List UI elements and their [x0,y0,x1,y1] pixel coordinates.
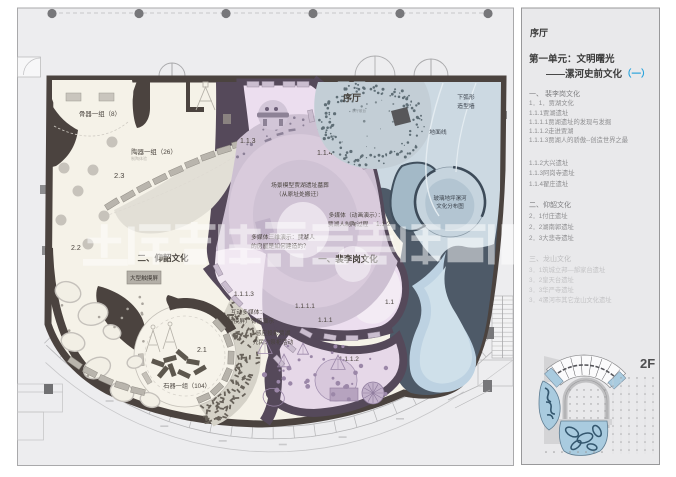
svg-text:1.1.1贾湖遗址: 1.1.1贾湖遗址 [529,108,569,117]
svg-text:2.3: 2.3 [114,171,124,180]
svg-text:1.1.1.3: 1.1.1.3 [234,291,254,298]
svg-text:多媒体（动画演示）：: 多媒体（动画演示）： [328,211,383,219]
svg-text:3．1筑城立邦—郝家台遗址: 3．1筑城立邦—郝家台遗址 [529,265,606,274]
svg-text:场景模型贾湖遗址墓葬: 场景模型贾湖遗址墓葬 [271,181,329,189]
svg-text:2．3大悲寺遗址: 2．3大悲寺遗址 [529,233,574,242]
svg-text:（从原址处搬迁）: （从原址处搬迁） [276,190,322,198]
svg-text:先民的祭祀活动: 先民的祭祀活动 [253,338,294,346]
svg-text:二、仰韶文化: 二、仰韶文化 [529,200,571,209]
svg-text:2．2湖南郭遗址: 2．2湖南郭遗址 [529,222,574,231]
svg-text:制陶体验: 制陶体验 [131,155,147,161]
svg-text:1.1.1: 1.1.1 [318,317,333,324]
svg-text:序厅散台: 序厅散台 [352,108,366,113]
svg-text:互动多媒体：: 互动多媒体： [231,308,266,316]
svg-text:1.1.3: 1.1.3 [240,138,256,145]
svg-text:3．3华严寺遗址: 3．3华严寺遗址 [529,285,574,294]
svg-text:1．1．贾湖文化: 1．1．贾湖文化 [529,98,574,107]
svg-text:石器一组（104）: 石器一组（104） [163,382,210,390]
svg-text:一、 裴李岗文化: 一、 裴李岗文化 [529,89,580,98]
svg-text:骨器一组（8）: 骨器一组（8） [79,109,121,118]
svg-text:2.2: 2.2 [71,245,81,252]
svg-text:第一单元：文明曙光: 第一单元：文明曙光 [529,53,615,65]
svg-text:1.1.1.2走进贾湖: 1.1.1.2走进贾湖 [529,126,573,135]
svg-text:文化分布图: 文化分布图 [436,202,464,210]
svg-text:陶器一组（26）: 陶器一组（26） [131,147,176,156]
svg-text:3．4漯河市其它龙山文化遗址: 3．4漯河市其它龙山文化遗址 [529,295,612,304]
svg-text:——漯河史前文化（一）: ——漯河史前文化（一） [546,68,651,80]
svg-text:序厅: 序厅 [530,27,548,38]
svg-text:3．2皇天台遗址: 3．2皇天台遗址 [529,275,574,284]
svg-text:三、龙山文化: 三、龙山文化 [529,254,571,263]
svg-text:1.1.3阿岗寺遗址: 1.1.3阿岗寺遗址 [529,168,575,177]
svg-text:1.1.1.3贾湖人的骄傲--创造世界之最: 1.1.1.3贾湖人的骄傲--创造世界之最 [529,135,629,144]
svg-text:地面线: 地面线 [429,128,447,136]
svg-text:1.1.1.1: 1.1.1.1 [295,303,315,310]
svg-text:下弧形: 下弧形 [457,93,475,101]
svg-text:2F: 2F [640,356,655,371]
svg-text:2．1付庄遗址: 2．1付庄遗址 [529,211,568,220]
svg-text:1.1.4翟庄遗址: 1.1.4翟庄遗址 [529,179,569,188]
svg-text:感应投影贾湖: 感应投影贾湖 [256,329,291,337]
svg-text:2.1: 2.1 [197,347,207,354]
svg-text:1.1.1.1贾湖遗址的发现与发掘: 1.1.1.1贾湖遗址的发现与发掘 [529,117,611,126]
svg-text:（触摸屏）骨笛演示: （触摸屏）骨笛演示 [222,317,274,325]
svg-text:1.1.2大兴遗址: 1.1.2大兴遗址 [529,158,569,167]
svg-text:序厅: 序厅 [343,92,361,103]
svg-text:大型触摸屏: 大型触摸屏 [130,274,158,282]
svg-text:玻璃地坪漯河: 玻璃地坪漯河 [433,194,467,202]
svg-text:造型墙: 造型墙 [457,102,475,110]
svg-text:1.1: 1.1 [385,299,394,306]
